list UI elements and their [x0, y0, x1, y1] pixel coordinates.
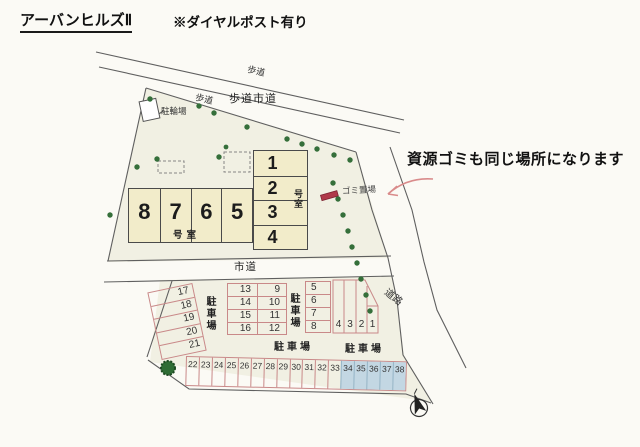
recycle-note: 資源ゴミも同じ場所になります: [407, 152, 624, 169]
dial-post-note: ※ダイヤルポスト有り: [173, 16, 308, 31]
parking-space: 10: [257, 296, 286, 309]
parking-space: 8: [306, 320, 330, 333]
parking-space: 5: [306, 282, 330, 294]
unit-4: 4: [254, 225, 307, 250]
parking-block-9-16: 13 9 14 10 15 11 16 12: [227, 283, 287, 335]
unit-1: 1: [254, 151, 307, 176]
parking-space: 26: [237, 358, 251, 386]
parking-space-reserved: 38: [392, 362, 406, 390]
tree-icon: [224, 145, 229, 150]
tree-icon: [299, 141, 304, 146]
tree-icon: [358, 276, 363, 281]
bicycle-parking-box: [139, 98, 160, 121]
tree-icon: [331, 152, 336, 157]
tree-icon: [335, 196, 340, 201]
arrow-pointer-icon: [388, 179, 433, 196]
parking-space: 1: [367, 319, 378, 332]
page-title: アーバンヒルズⅡ: [20, 13, 132, 33]
tree-icon: [314, 146, 319, 151]
parking-space-reserved: 36: [366, 361, 380, 389]
parking-space: 11: [257, 309, 286, 322]
parking-label-vertical-2: 駐車場: [288, 293, 299, 329]
tree-icon: [244, 124, 249, 129]
parking-space: 22: [186, 357, 199, 385]
parking-label-bottom-1: 駐車場: [274, 342, 313, 353]
parking-row-22-38: 22 23 24 25 26 27 28 29 30 31 32 33 34 3…: [185, 356, 407, 391]
parking-space: 16: [228, 322, 257, 335]
site-plan: アーバンヒルズⅡ ※ダイヤルポスト有り 資源ゴミも同じ場所になります 歩道 歩道…: [0, 0, 640, 447]
tree-icon: [345, 228, 350, 233]
tree-icon: [330, 180, 335, 185]
parking-space: 6: [306, 294, 330, 307]
unit-suffix-label: 号室: [292, 189, 305, 209]
building-col-1-4: 1 2 3 4 号室: [253, 150, 308, 250]
parking-space: 24: [211, 358, 225, 386]
parking-space: 32: [315, 360, 329, 388]
parking-block-5-8: 5 6 7 8: [305, 281, 331, 333]
tree-icon: [367, 308, 372, 313]
tree-icon: [107, 212, 112, 217]
unit-suffix-label: 号室: [129, 227, 244, 241]
tree-icon: [154, 156, 159, 161]
tree-icon: [134, 164, 139, 169]
tree-icon: [284, 136, 289, 141]
parking-space: 29: [276, 359, 290, 387]
parking-space: 25: [224, 358, 238, 386]
parking-space-reserved: 34: [340, 361, 354, 389]
parking-space: 27: [250, 359, 264, 387]
parking-space: 31: [302, 360, 316, 388]
parking-space-reserved: 37: [379, 362, 393, 390]
bicycle-parking-label: 駐輪場: [161, 107, 187, 116]
parking-space: 14: [228, 296, 257, 309]
parking-space: 9: [257, 284, 286, 296]
road-label-city-road: 市道: [234, 262, 257, 274]
parking-label-bottom-2: 駐車場: [345, 344, 384, 355]
tree-icon: [340, 212, 345, 217]
tree-icon: [161, 361, 175, 375]
parking-space: 28: [263, 359, 277, 387]
tree-icon: [216, 154, 221, 159]
tree-icon: [147, 96, 152, 101]
parking-space: 33: [328, 360, 342, 388]
parking-space: 15: [228, 309, 257, 322]
parking-space-reserved: 35: [353, 361, 367, 389]
garbage-area-label: ゴミ置場: [342, 185, 376, 196]
tree-icon: [354, 260, 359, 265]
tree-icon: [347, 157, 352, 162]
parking-space: 30: [289, 360, 303, 388]
parking-label-vertical-1: 駐車場: [204, 296, 215, 332]
tree-icon: [211, 110, 216, 115]
parking-space: 2: [356, 319, 367, 332]
parking-space: 13: [228, 284, 257, 296]
parking-space: 7: [306, 307, 330, 320]
parking-space: 4: [333, 319, 344, 332]
parking-space: 23: [198, 357, 212, 385]
parking-space: 3: [345, 319, 356, 332]
tree-icon: [349, 244, 354, 249]
road-label-sidewalk-city: 歩道市道: [229, 93, 277, 105]
tree-icon: [363, 292, 368, 297]
building-row-5-8: 8 7 6 5 号室: [128, 188, 253, 243]
parking-space: 12: [257, 322, 286, 335]
